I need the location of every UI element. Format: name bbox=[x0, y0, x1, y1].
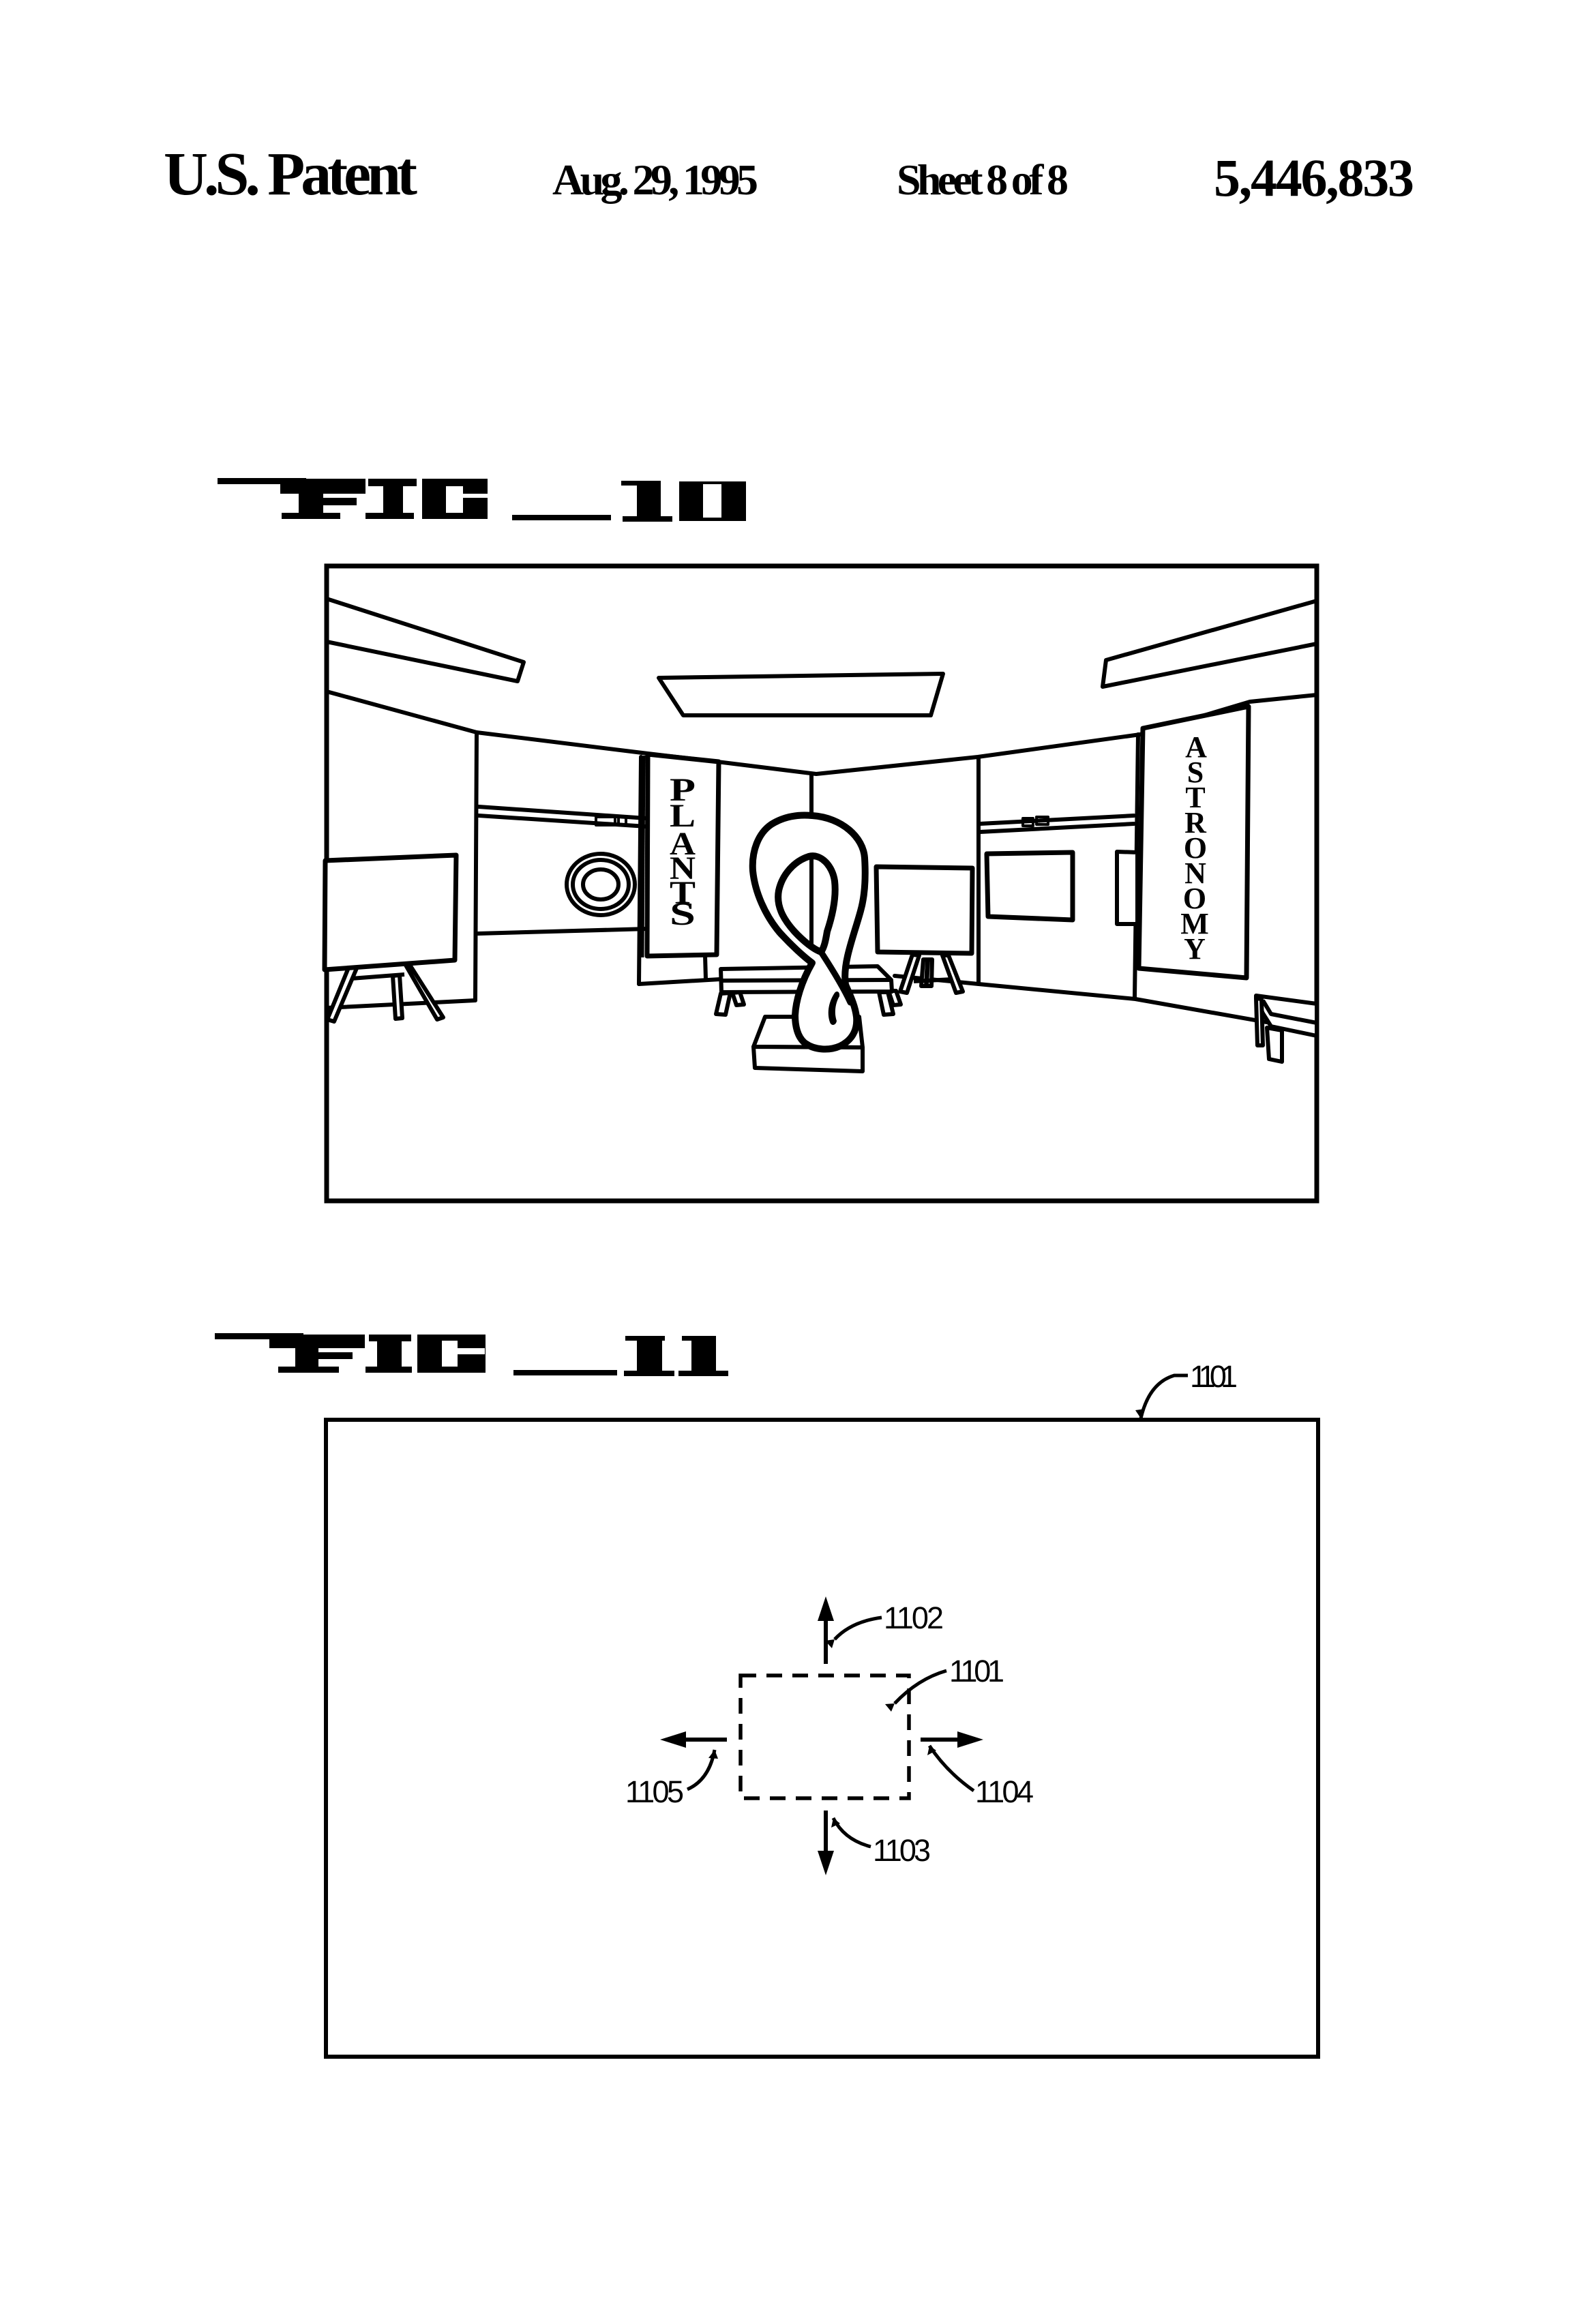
svg-text:S: S bbox=[670, 896, 696, 932]
svg-text:1101: 1101 bbox=[1190, 1359, 1238, 1394]
svg-text:5,446,833: 5,446,833 bbox=[1214, 148, 1414, 207]
svg-text:1102: 1102 bbox=[884, 1600, 944, 1635]
svg-text:1101: 1101 bbox=[949, 1654, 1004, 1688]
svg-text:1104: 1104 bbox=[975, 1774, 1034, 1809]
svg-text:U.S. Patent: U.S. Patent bbox=[164, 140, 417, 208]
svg-text:Y: Y bbox=[1184, 932, 1206, 966]
svg-text:1105: 1105 bbox=[625, 1774, 684, 1809]
svg-text:Aug. 29, 1995: Aug. 29, 1995 bbox=[552, 155, 758, 204]
svg-text:1103: 1103 bbox=[873, 1833, 931, 1868]
svg-text:Sheet 8 of 8: Sheet 8 of 8 bbox=[897, 155, 1069, 204]
